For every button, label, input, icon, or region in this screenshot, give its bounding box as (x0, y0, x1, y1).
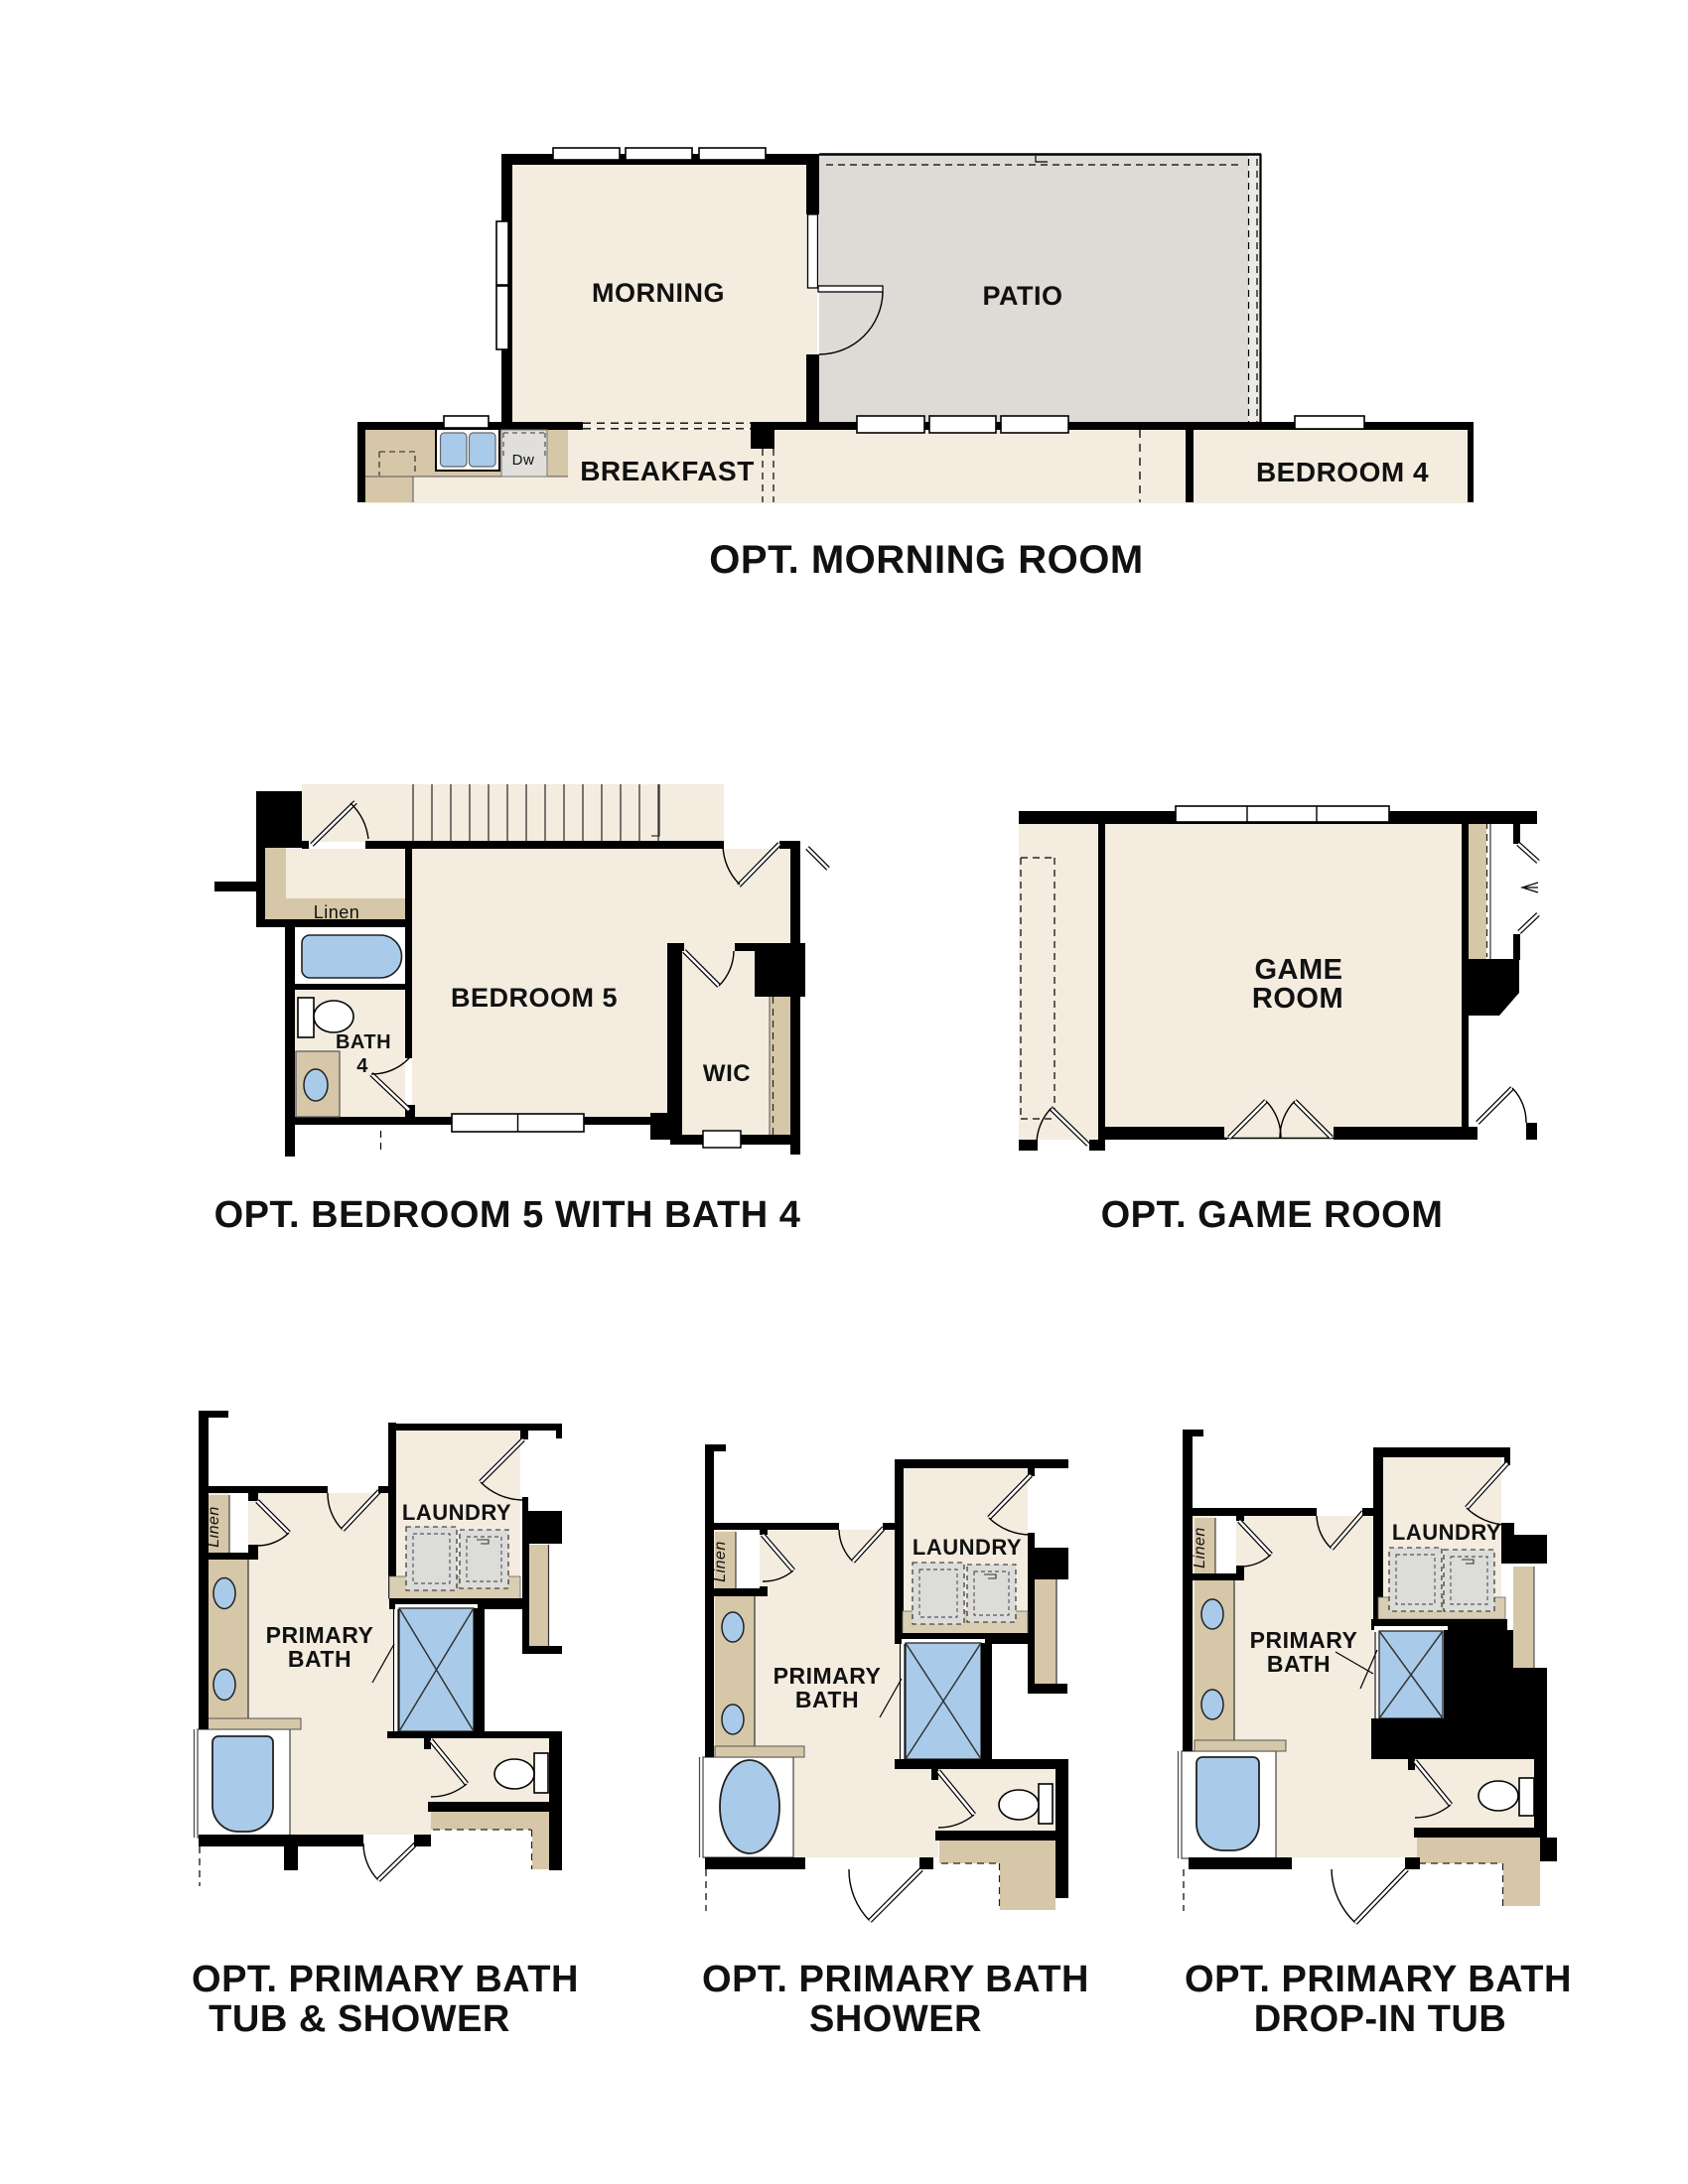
svg-text:LAUNDRY: LAUNDRY (1392, 1520, 1501, 1545)
svg-text:PRIMARY: PRIMARY (774, 1663, 882, 1689)
svg-text:SHOWER: SHOWER (809, 1998, 982, 2040)
svg-text:PATIO: PATIO (983, 281, 1063, 311)
svg-text:LAUNDRY: LAUNDRY (913, 1535, 1022, 1560)
svg-text:DROP-IN TUB: DROP-IN TUB (1254, 1998, 1507, 2040)
svg-text:BATH: BATH (336, 1031, 391, 1053)
svg-text:PRIMARY: PRIMARY (1250, 1627, 1358, 1653)
svg-text:BEDROOM 5: BEDROOM 5 (451, 983, 618, 1013)
svg-text:LAUNDRY: LAUNDRY (402, 1500, 511, 1525)
svg-text:OPT. PRIMARY BATH: OPT. PRIMARY BATH (192, 1959, 579, 2000)
svg-text:Linen: Linen (314, 902, 360, 922)
svg-text:Linen: Linen (712, 1541, 729, 1582)
svg-text:BREAKFAST: BREAKFAST (580, 456, 755, 486)
svg-text:OPT. GAME ROOM: OPT. GAME ROOM (1101, 1194, 1444, 1236)
svg-text:4: 4 (356, 1055, 368, 1077)
svg-text:OPT. PRIMARY BATH: OPT. PRIMARY BATH (1185, 1959, 1572, 2000)
svg-text:OPT. MORNING ROOM: OPT. MORNING ROOM (709, 538, 1143, 582)
svg-text:OPT. BEDROOM 5 WITH BATH 4: OPT. BEDROOM 5 WITH BATH 4 (214, 1194, 801, 1236)
svg-text:PRIMARY: PRIMARY (266, 1622, 374, 1648)
svg-text:WIC: WIC (703, 1060, 751, 1087)
svg-text:Linen: Linen (206, 1506, 222, 1548)
svg-text:GAME: GAME (1255, 954, 1343, 986)
svg-text:BATH: BATH (795, 1687, 859, 1712)
svg-text:MORNING: MORNING (592, 278, 725, 308)
svg-text:OPT. PRIMARY BATH: OPT. PRIMARY BATH (702, 1959, 1089, 2000)
svg-text:BATH: BATH (288, 1646, 352, 1672)
svg-text:BATH: BATH (1267, 1651, 1331, 1677)
svg-text:BEDROOM 4: BEDROOM 4 (1256, 457, 1429, 487)
svg-text:TUB & SHOWER: TUB & SHOWER (209, 1998, 510, 2040)
svg-text:Dw: Dw (512, 452, 535, 469)
svg-text:ROOM: ROOM (1252, 983, 1343, 1015)
svg-text:Linen: Linen (1192, 1527, 1208, 1569)
